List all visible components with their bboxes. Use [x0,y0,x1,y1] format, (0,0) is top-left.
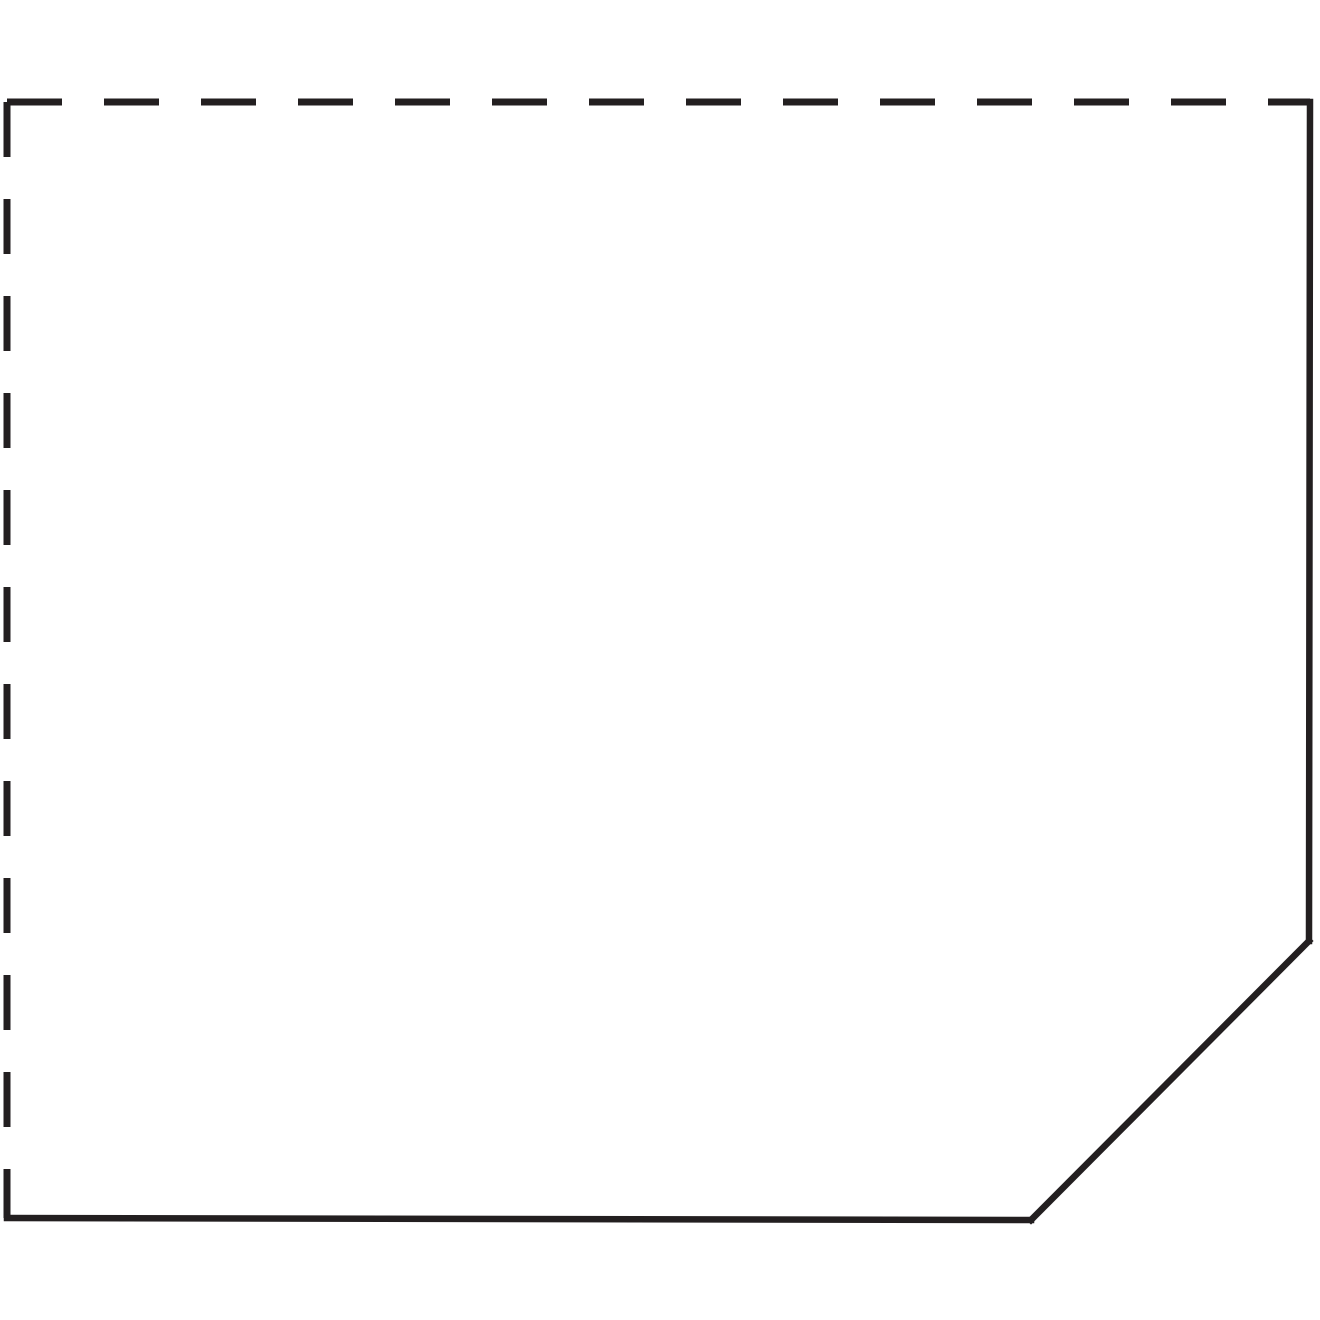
bevel-edge [1031,941,1309,1220]
panel-outline-diagram [0,0,1320,1320]
right-edge [1309,102,1310,941]
panel-edges [7,102,1310,1220]
bottom-edge [7,1218,1031,1220]
diagram-canvas [0,0,1320,1320]
